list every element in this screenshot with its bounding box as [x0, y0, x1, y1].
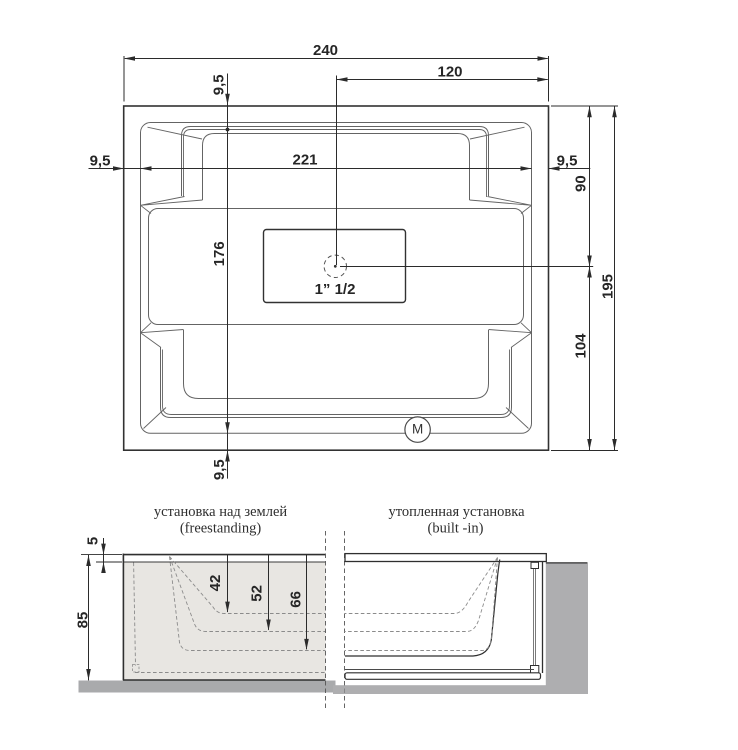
- svg-text:221: 221: [292, 152, 317, 169]
- svg-text:176: 176: [211, 241, 228, 266]
- svg-text:104: 104: [573, 333, 590, 359]
- svg-text:42: 42: [207, 575, 224, 592]
- svg-text:90: 90: [573, 175, 590, 192]
- svg-text:(built -in): (built -in): [428, 521, 484, 537]
- svg-text:9,5: 9,5: [557, 153, 578, 170]
- svg-text:установка над землей: установка над землей: [154, 504, 288, 520]
- svg-text:9,5: 9,5: [211, 74, 228, 95]
- svg-text:9,5: 9,5: [211, 459, 228, 480]
- svg-text:(freestanding): (freestanding): [180, 521, 261, 537]
- svg-text:66: 66: [287, 591, 304, 608]
- svg-text:утопленная установка: утопленная установка: [388, 504, 525, 520]
- svg-text:9,5: 9,5: [90, 153, 111, 170]
- svg-text:240: 240: [313, 42, 338, 59]
- svg-text:120: 120: [437, 64, 462, 81]
- svg-text:1” 1/2: 1” 1/2: [315, 281, 356, 298]
- svg-text:5: 5: [85, 537, 102, 545]
- svg-text:52: 52: [249, 585, 266, 602]
- svg-text:195: 195: [600, 274, 617, 299]
- svg-text:85: 85: [75, 612, 92, 629]
- svg-text:M: M: [412, 422, 423, 437]
